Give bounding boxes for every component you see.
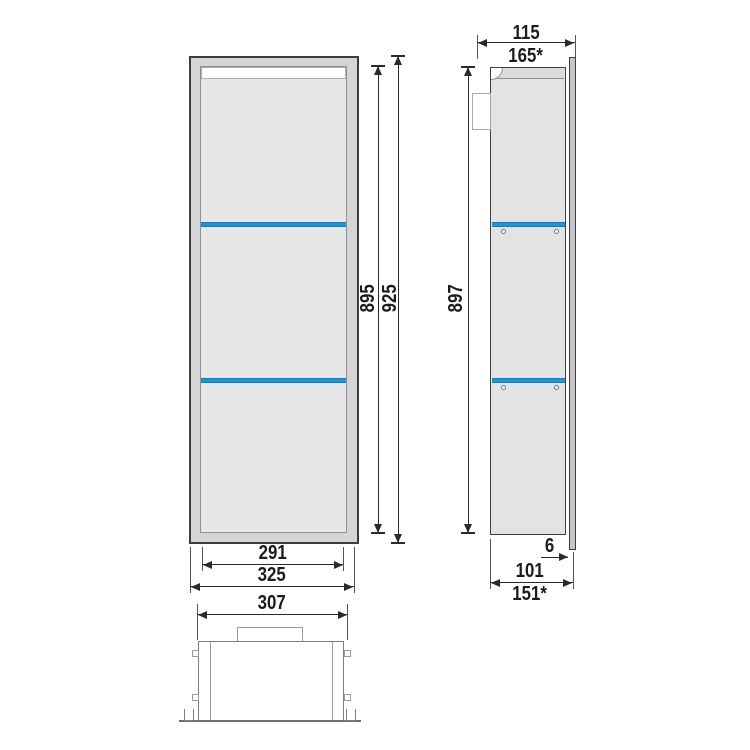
arrow-down-icon bbox=[394, 534, 402, 543]
front-shelf-line-1 bbox=[201, 222, 346, 227]
dim-line bbox=[468, 67, 469, 533]
arrow-up-icon bbox=[464, 67, 472, 76]
dim-extension bbox=[575, 35, 576, 57]
dim-label-895: 895 bbox=[358, 258, 378, 338]
arrow-down-icon bbox=[374, 524, 382, 533]
side-mounting-box bbox=[472, 93, 491, 130]
dim-label-291: 291 bbox=[202, 543, 343, 563]
dim-label-325: 325 bbox=[190, 565, 354, 585]
top-view-wall-line bbox=[210, 642, 211, 720]
shelf-pin-icon bbox=[501, 229, 506, 234]
shelf-pin-icon bbox=[554, 229, 559, 234]
shelf-pin-icon bbox=[554, 385, 559, 390]
dim-line bbox=[190, 586, 354, 587]
side-shelf-line-1 bbox=[492, 222, 565, 227]
dim-extension bbox=[347, 604, 348, 640]
dim-label-165: 165* bbox=[477, 46, 575, 66]
dim-extension bbox=[354, 547, 355, 593]
mounting-clip-icon bbox=[344, 694, 351, 701]
top-view-wall-line bbox=[332, 642, 333, 720]
top-view-tab bbox=[237, 627, 303, 642]
top-view-front-frame-line bbox=[179, 720, 361, 722]
dim-label-925: 925 bbox=[380, 258, 400, 338]
dim-label-897: 897 bbox=[446, 258, 466, 338]
mounting-clip-icon bbox=[192, 650, 199, 657]
frame-return-left bbox=[184, 709, 194, 721]
arrow-down-icon bbox=[464, 524, 472, 533]
side-front-flange bbox=[569, 57, 576, 550]
arrow-up-icon bbox=[394, 56, 402, 65]
frame-return-right bbox=[346, 709, 356, 721]
top-view-body bbox=[198, 641, 344, 721]
dim-label-6: 6 bbox=[536, 536, 564, 556]
dim-label-307: 307 bbox=[197, 593, 347, 613]
front-top-grip-gap bbox=[201, 67, 346, 79]
dim-label-115: 115 bbox=[477, 23, 575, 43]
side-body bbox=[490, 67, 566, 535]
mounting-clip-icon bbox=[344, 650, 351, 657]
dim-line bbox=[197, 614, 347, 615]
dim-label-151: 151* bbox=[486, 584, 574, 604]
shelf-pin-icon bbox=[501, 385, 506, 390]
front-shelf-line-2 bbox=[201, 378, 346, 383]
arrow-up-icon bbox=[374, 66, 382, 75]
dim-label-101: 101 bbox=[486, 561, 574, 581]
technical-drawing-canvas: 895 925 291 325 bbox=[0, 0, 750, 750]
mounting-clip-icon bbox=[192, 694, 199, 701]
front-door-panel bbox=[200, 66, 347, 533]
side-shelf-line-2 bbox=[492, 378, 565, 383]
